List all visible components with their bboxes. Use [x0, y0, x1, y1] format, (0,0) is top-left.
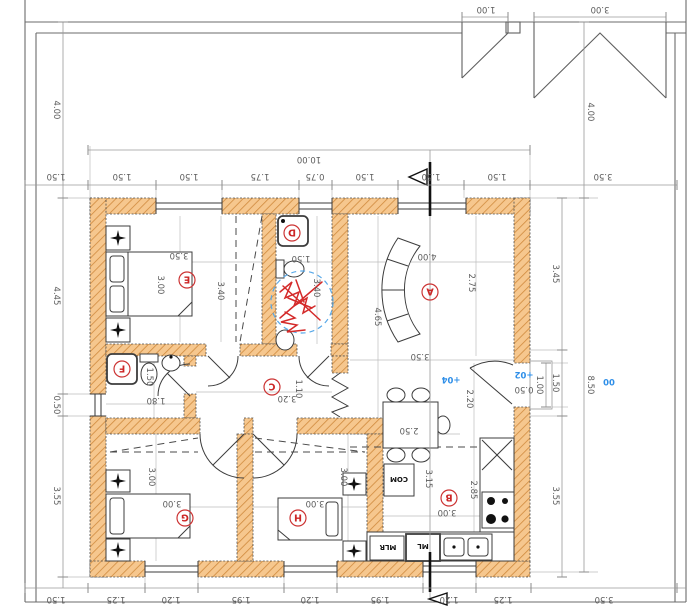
dim: 1.50 — [356, 171, 375, 181]
dim: 3.40 — [215, 282, 225, 301]
dim: 1.50 — [550, 374, 560, 393]
dim: 1.50 — [180, 171, 199, 181]
dim: 1.20 — [301, 594, 320, 604]
dining-table — [383, 388, 450, 462]
room-label-d: D — [288, 227, 296, 238]
floor-plan-canvas: COM MLR ML — [0, 0, 688, 616]
dim: 1.50 — [47, 594, 66, 604]
dim: 3.40 — [311, 279, 321, 298]
dim: 3.00 — [306, 498, 325, 508]
level-floor: +04 — [441, 374, 460, 384]
dim: 3.00 — [438, 507, 457, 517]
dim: 2.50 — [400, 425, 419, 435]
dim: 4.00 — [51, 101, 61, 120]
dim: 0.75 — [306, 171, 325, 181]
dim-roof-small: 1.00 — [477, 4, 496, 14]
dim: 8.50 — [585, 376, 595, 395]
bathroom-d-fixtures — [271, 216, 333, 350]
room-label-c: C — [268, 381, 275, 392]
room-label-a: A — [426, 286, 434, 297]
dim: 1.10 — [293, 380, 303, 399]
room-label-b: B — [445, 492, 452, 503]
pillow — [110, 286, 124, 312]
pillow — [110, 256, 124, 282]
chair — [387, 388, 405, 402]
dim-step-depth: 0.50 — [515, 384, 534, 394]
dim: 1.25 — [107, 594, 126, 604]
kitchen-sink-icon — [440, 534, 492, 560]
dim: 1.50 — [422, 171, 441, 181]
roof-outlines — [462, 22, 666, 98]
dim: 1.50 — [113, 171, 132, 181]
dim: 4.00 — [418, 251, 437, 261]
dim: 3.50 — [170, 250, 189, 260]
dim: 3.00 — [155, 276, 165, 295]
room-label-f: F — [119, 363, 126, 374]
entry-door-leaf — [470, 368, 512, 404]
dim: 1.80 — [147, 395, 166, 405]
freezer-label: COM — [390, 475, 408, 483]
mlr-label: MLR — [379, 543, 396, 551]
room-label-g: G — [181, 512, 189, 523]
pillow — [110, 498, 124, 534]
dim: 2.20 — [464, 390, 474, 409]
washbasin-icon — [276, 330, 294, 350]
bedroom-e-furniture — [106, 226, 192, 342]
pillow — [326, 502, 338, 536]
dim: 3.55 — [550, 487, 560, 506]
dim: 3.15 — [423, 470, 433, 489]
dim: 3.50 — [594, 171, 613, 181]
dim: 0.50 — [51, 396, 61, 415]
dim: 1.20 — [440, 594, 459, 604]
dim: 3.00 — [146, 468, 156, 487]
dim: 3.00 — [338, 468, 348, 487]
dim: 2.85 — [468, 481, 478, 500]
dim: 4.00 — [585, 103, 595, 122]
dim: 3.50 — [595, 594, 614, 604]
entry-door-arc — [470, 361, 513, 368]
dim: 1.50 — [47, 171, 66, 181]
opening-zigzag-icon — [332, 373, 348, 417]
ml-label: ML — [417, 542, 429, 550]
level-step: +02 — [514, 369, 533, 379]
dim: 3.50 — [411, 351, 430, 361]
dim: 3.55 — [51, 487, 61, 506]
dim: 2.75 — [466, 274, 476, 293]
dim: 1.50 — [488, 171, 507, 181]
dim: 1.95 — [371, 594, 390, 604]
room-label-h: H — [294, 512, 302, 523]
level-site: 00 — [603, 376, 615, 386]
dim: 4.65 — [372, 308, 382, 327]
dim: 1.95 — [232, 594, 251, 604]
dim: 1.20 — [162, 594, 181, 604]
dim: 4.45 — [51, 287, 61, 306]
sofa — [382, 238, 420, 342]
dim-roof-large: 3.00 — [591, 4, 610, 14]
revision-cloud — [271, 271, 333, 333]
dim: 3.00 — [163, 498, 182, 508]
dim: 1.25 — [494, 594, 513, 604]
chair — [412, 448, 430, 462]
room-label-e: E — [184, 274, 191, 285]
chair — [412, 388, 430, 402]
dim: 1.75 — [251, 171, 270, 181]
chair — [387, 448, 405, 462]
dim: 1.50 — [292, 253, 311, 263]
dim-entry-door: 1.00 — [534, 376, 544, 395]
dim: 3.45 — [550, 265, 560, 284]
stove-icon — [482, 492, 514, 528]
dim-total-width: 10.00 — [297, 154, 321, 164]
floor-plan-sheet: COM MLR ML — [0, 0, 688, 616]
dim: 1.50 — [144, 368, 154, 387]
